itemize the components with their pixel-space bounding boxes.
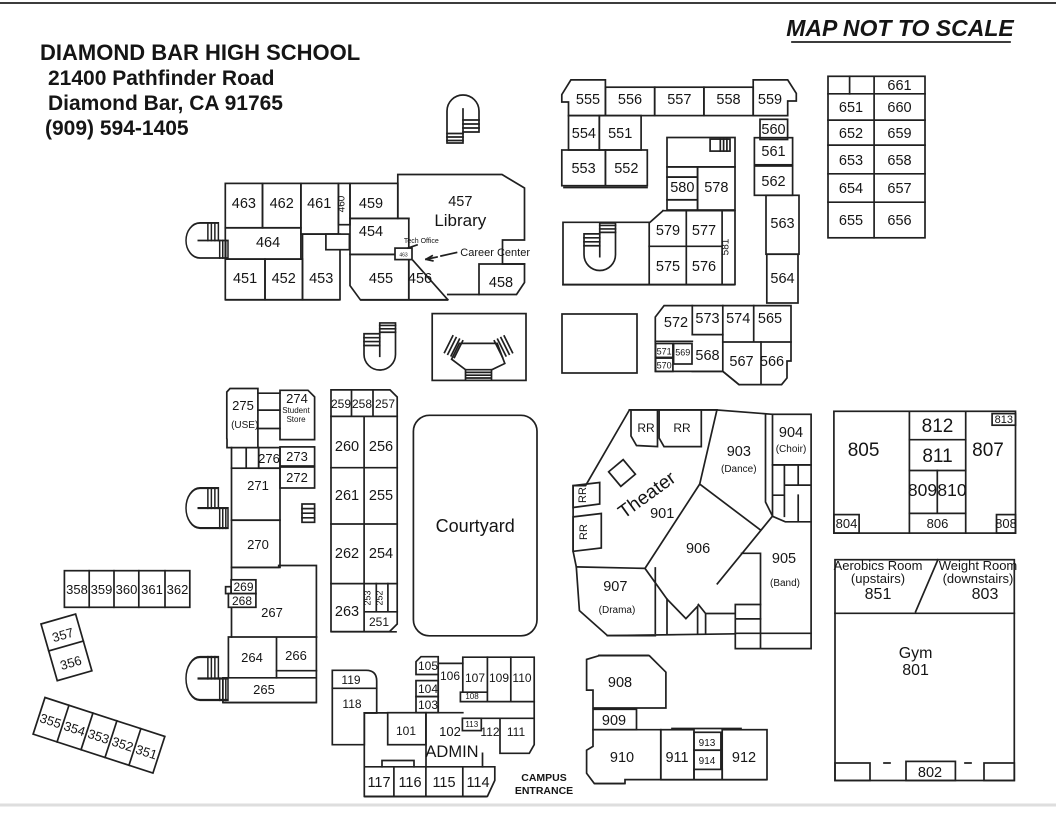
svg-text:575: 575 <box>656 259 680 275</box>
svg-text:557: 557 <box>667 92 691 108</box>
svg-text:105: 105 <box>418 659 438 673</box>
svg-text:362: 362 <box>167 582 189 597</box>
svg-text:Tech Office: Tech Office <box>404 238 439 245</box>
svg-text:651: 651 <box>839 100 863 116</box>
svg-text:910: 910 <box>610 750 634 766</box>
svg-text:808: 808 <box>995 516 1017 531</box>
svg-text:275: 275 <box>232 398 254 413</box>
svg-text:801: 801 <box>902 662 929 679</box>
svg-text:110: 110 <box>512 671 531 685</box>
svg-text:657: 657 <box>887 181 911 197</box>
svg-text:904: 904 <box>779 425 803 441</box>
svg-text:912: 912 <box>732 750 756 766</box>
svg-text:455: 455 <box>369 271 393 287</box>
svg-text:459: 459 <box>359 196 383 212</box>
svg-text:914: 914 <box>699 756 716 767</box>
svg-text:901: 901 <box>650 506 674 522</box>
svg-text:265: 265 <box>253 682 275 697</box>
svg-text:461: 461 <box>307 196 331 212</box>
svg-text:566: 566 <box>760 354 784 370</box>
svg-text:103: 103 <box>418 698 438 712</box>
svg-text:(Dance): (Dance) <box>721 464 757 475</box>
svg-text:456: 456 <box>408 271 432 287</box>
svg-text:451: 451 <box>233 271 257 287</box>
svg-text:104: 104 <box>418 682 438 696</box>
svg-text:256: 256 <box>369 439 393 455</box>
svg-text:570: 570 <box>657 361 672 371</box>
svg-text:579: 579 <box>656 223 680 239</box>
svg-text:552: 552 <box>614 161 638 177</box>
svg-text:812: 812 <box>922 416 954 437</box>
svg-text:RR: RR <box>578 524 590 540</box>
svg-text:ENTRANCE: ENTRANCE <box>515 785 573 797</box>
svg-text:558: 558 <box>716 92 740 108</box>
svg-text:911: 911 <box>665 750 688 766</box>
svg-text:462: 462 <box>270 196 294 212</box>
svg-text:107: 107 <box>465 671 485 685</box>
svg-text:359: 359 <box>91 582 113 597</box>
svg-text:(upstairs): (upstairs) <box>851 571 905 586</box>
svg-text:273: 273 <box>286 449 308 464</box>
svg-text:565: 565 <box>758 311 782 327</box>
svg-text:572: 572 <box>664 315 688 331</box>
svg-text:254: 254 <box>369 546 393 562</box>
svg-text:452: 452 <box>272 271 296 287</box>
svg-text:802: 802 <box>918 765 942 781</box>
svg-text:DIAMOND BAR HIGH SCHOOL: DIAMOND BAR HIGH SCHOOL <box>40 40 360 65</box>
svg-text:560: 560 <box>761 122 785 138</box>
svg-text:Diamond Bar, CA 91765: Diamond Bar, CA 91765 <box>48 92 283 115</box>
svg-text:909: 909 <box>602 713 626 729</box>
svg-text:813: 813 <box>995 414 1013 426</box>
svg-text:806: 806 <box>927 516 949 531</box>
svg-text:118: 118 <box>342 697 361 711</box>
svg-text:109: 109 <box>489 671 509 685</box>
svg-text:117: 117 <box>367 775 390 791</box>
svg-text:810: 810 <box>937 480 966 500</box>
svg-text:653: 653 <box>839 153 863 169</box>
svg-text:101: 101 <box>396 724 416 738</box>
svg-text:251: 251 <box>369 615 389 629</box>
svg-text:259: 259 <box>331 397 351 411</box>
svg-text:658: 658 <box>887 153 911 169</box>
svg-text:361: 361 <box>141 582 163 597</box>
svg-text:460: 460 <box>337 195 348 212</box>
svg-text:571: 571 <box>657 347 672 357</box>
svg-text:907: 907 <box>603 579 627 595</box>
svg-text:RR: RR <box>673 421 691 435</box>
svg-text:908: 908 <box>608 675 632 691</box>
svg-text:655: 655 <box>839 213 863 229</box>
svg-text:803: 803 <box>972 586 999 603</box>
svg-text:CAMPUS: CAMPUS <box>521 772 567 784</box>
svg-text:(downstairs): (downstairs) <box>943 571 1014 586</box>
svg-text:577: 577 <box>692 223 716 239</box>
svg-text:563: 563 <box>770 216 794 232</box>
svg-text:Student: Student <box>282 406 310 415</box>
svg-text:564: 564 <box>770 271 794 287</box>
svg-text:252: 252 <box>374 590 384 605</box>
svg-text:Career Center: Career Center <box>460 247 530 259</box>
svg-text:115: 115 <box>432 775 455 791</box>
svg-text:Store: Store <box>286 415 306 424</box>
svg-text:851: 851 <box>865 586 892 603</box>
svg-text:903: 903 <box>727 444 751 460</box>
svg-text:453: 453 <box>309 271 333 287</box>
svg-text:269: 269 <box>233 580 253 594</box>
svg-text:106: 106 <box>440 669 460 683</box>
svg-text:268: 268 <box>232 594 252 608</box>
svg-text:114: 114 <box>466 775 489 791</box>
svg-text:906: 906 <box>686 541 710 557</box>
svg-text:569: 569 <box>675 348 690 358</box>
svg-text:807: 807 <box>972 440 1004 461</box>
svg-text:562: 562 <box>761 174 785 190</box>
svg-text:809: 809 <box>908 480 937 500</box>
svg-text:262: 262 <box>335 546 359 562</box>
svg-text:580: 580 <box>670 180 694 196</box>
svg-text:656: 656 <box>887 213 911 229</box>
svg-text:551: 551 <box>608 126 632 142</box>
svg-text:(909) 594-1405: (909) 594-1405 <box>45 117 189 140</box>
svg-text:573: 573 <box>695 311 719 327</box>
svg-text:258: 258 <box>352 397 372 411</box>
svg-text:581: 581 <box>721 238 732 255</box>
svg-text:RR: RR <box>637 421 655 435</box>
svg-text:271: 271 <box>247 478 269 493</box>
svg-text:MAP NOT TO SCALE: MAP NOT TO SCALE <box>786 15 1014 41</box>
svg-text:660: 660 <box>887 100 911 116</box>
svg-text:21400 Pathfinder Road: 21400 Pathfinder Road <box>48 67 274 90</box>
svg-text:464: 464 <box>256 235 280 251</box>
svg-text:811: 811 <box>922 446 952 467</box>
svg-text:119: 119 <box>341 673 360 687</box>
svg-text:457: 457 <box>448 194 472 210</box>
svg-text:805: 805 <box>848 440 880 461</box>
svg-text:458: 458 <box>489 275 513 291</box>
svg-text:Gym: Gym <box>899 645 933 662</box>
svg-text:267: 267 <box>261 605 283 620</box>
svg-text:659: 659 <box>887 126 911 142</box>
svg-text:(Drama): (Drama) <box>599 605 636 616</box>
svg-text:654: 654 <box>839 181 863 197</box>
svg-text:454: 454 <box>359 224 383 240</box>
svg-text:266: 266 <box>285 648 307 663</box>
svg-text:111: 111 <box>507 725 526 739</box>
svg-text:Courtyard: Courtyard <box>436 516 515 536</box>
svg-text:(Choir): (Choir) <box>776 444 807 455</box>
svg-text:913: 913 <box>699 738 716 749</box>
svg-text:270: 270 <box>247 537 269 552</box>
svg-text:255: 255 <box>369 488 393 504</box>
svg-text:260: 260 <box>335 439 359 455</box>
svg-text:559: 559 <box>758 92 782 108</box>
svg-text:RR: RR <box>577 487 589 503</box>
svg-text:567: 567 <box>729 354 753 370</box>
svg-text:261: 261 <box>335 488 359 504</box>
svg-text:804: 804 <box>836 516 858 531</box>
svg-text:113: 113 <box>465 720 478 729</box>
svg-text:652: 652 <box>839 126 863 142</box>
svg-text:276: 276 <box>258 451 280 466</box>
svg-text:116: 116 <box>398 775 421 791</box>
svg-text:108: 108 <box>465 692 479 701</box>
svg-text:264: 264 <box>241 650 263 665</box>
svg-text:360: 360 <box>116 582 138 597</box>
svg-text:574: 574 <box>726 311 750 327</box>
svg-text:263: 263 <box>335 604 359 620</box>
svg-text:568: 568 <box>695 348 719 364</box>
svg-text:661: 661 <box>887 78 911 94</box>
svg-text:358: 358 <box>66 582 88 597</box>
svg-text:553: 553 <box>571 161 595 177</box>
svg-text:102: 102 <box>439 724 461 739</box>
svg-text:257: 257 <box>375 397 395 411</box>
svg-text:274: 274 <box>286 391 308 406</box>
svg-text:Library: Library <box>434 211 486 230</box>
svg-text:554: 554 <box>572 126 596 142</box>
svg-text:463: 463 <box>399 253 408 259</box>
svg-text:555: 555 <box>576 92 600 108</box>
svg-text:556: 556 <box>618 92 642 108</box>
svg-text:(USE): (USE) <box>231 420 258 431</box>
svg-text:112: 112 <box>480 725 499 739</box>
svg-text:463: 463 <box>232 196 256 212</box>
svg-text:576: 576 <box>692 259 716 275</box>
svg-text:253: 253 <box>363 590 373 605</box>
svg-text:905: 905 <box>772 551 796 567</box>
svg-text:ADMIN: ADMIN <box>425 743 478 761</box>
svg-text:578: 578 <box>704 180 728 196</box>
svg-text:(Band): (Band) <box>770 578 800 589</box>
svg-text:272: 272 <box>286 470 308 485</box>
svg-text:561: 561 <box>761 144 785 160</box>
